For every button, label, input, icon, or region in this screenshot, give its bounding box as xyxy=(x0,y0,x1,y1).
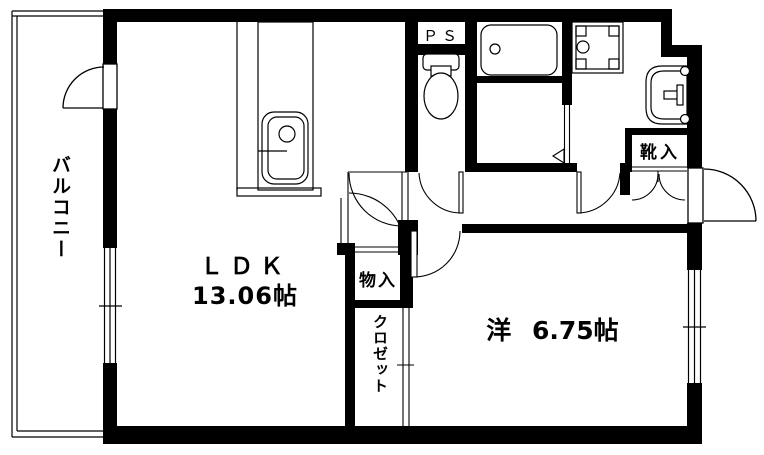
room-label-balcony: バルコニー xyxy=(44,155,74,305)
room-label-storage: 物入 xyxy=(353,266,403,291)
window-western-east xyxy=(683,270,706,383)
floorplan: バルコニー ＬＤＫ 13.06帖 洋 6.75帖 ＰＳ 靴入 物入 クロゼット xyxy=(0,0,764,455)
washroom-door xyxy=(577,172,620,213)
wall-left-1 xyxy=(103,9,117,65)
room-label-closet: クロゼット xyxy=(367,314,391,426)
wall-bottom xyxy=(103,426,702,444)
closet-door xyxy=(397,308,414,426)
balcony-door xyxy=(63,64,117,109)
wall-bathroom-east xyxy=(562,22,572,105)
shoe-cabinet-doors xyxy=(632,167,687,200)
wall-western-room-north xyxy=(462,224,702,233)
washbasin-icon xyxy=(646,66,690,124)
ldk-door xyxy=(341,172,408,247)
western-room-door xyxy=(411,231,460,277)
wall-top xyxy=(103,9,672,22)
wall-hall-north xyxy=(465,163,577,172)
room-label-shoe-cabinet: 靴入 xyxy=(632,138,688,163)
entrance-door xyxy=(688,168,756,223)
wall-right-upper xyxy=(687,45,702,168)
wall-left-2 xyxy=(103,109,117,248)
bathtub-platform-edge xyxy=(474,76,562,83)
washing-machine-pan-icon xyxy=(572,22,623,73)
room-label-pipe-space: ＰＳ xyxy=(416,25,468,46)
wall-storage-closet-divider xyxy=(345,300,413,308)
toilet-door xyxy=(419,172,463,213)
bathroom-door xyxy=(553,105,570,163)
wall-shoebox-west xyxy=(625,128,632,172)
kitchen-sink-icon xyxy=(258,112,308,184)
toilet-icon xyxy=(423,54,459,119)
wall-closet-west xyxy=(345,308,355,430)
bathtub-icon xyxy=(481,25,557,75)
wall-shoebox-top xyxy=(625,128,702,135)
room-label-western: 洋 6.75帖 xyxy=(430,311,675,347)
room-size-ldk: 13.06帖 xyxy=(152,276,338,311)
wall-left-3 xyxy=(103,363,117,444)
window-ldk-west xyxy=(99,248,122,363)
